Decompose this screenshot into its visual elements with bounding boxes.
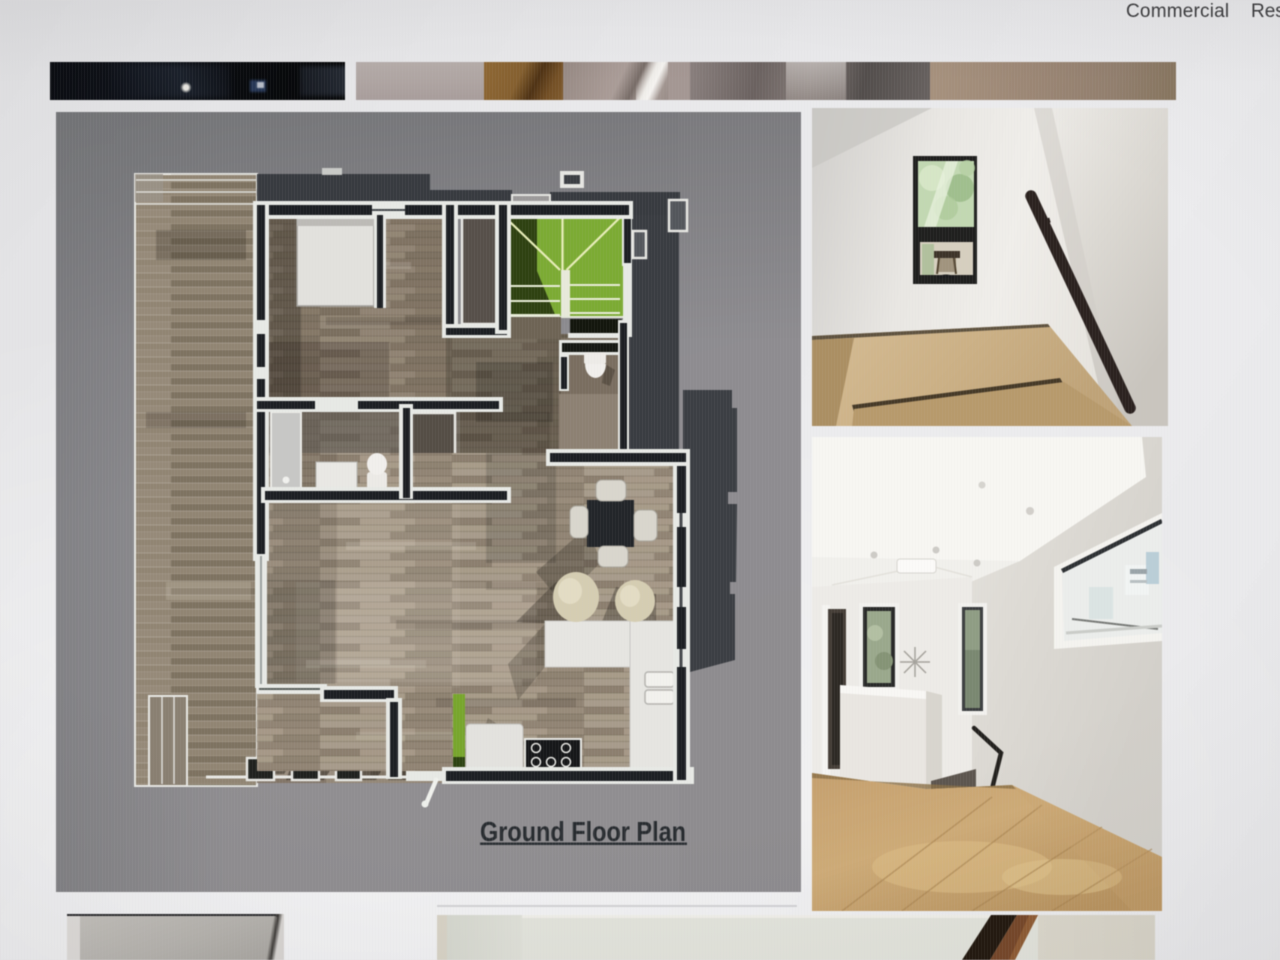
svg-text:Ground Floor Plan: Ground Floor Plan xyxy=(480,816,686,847)
